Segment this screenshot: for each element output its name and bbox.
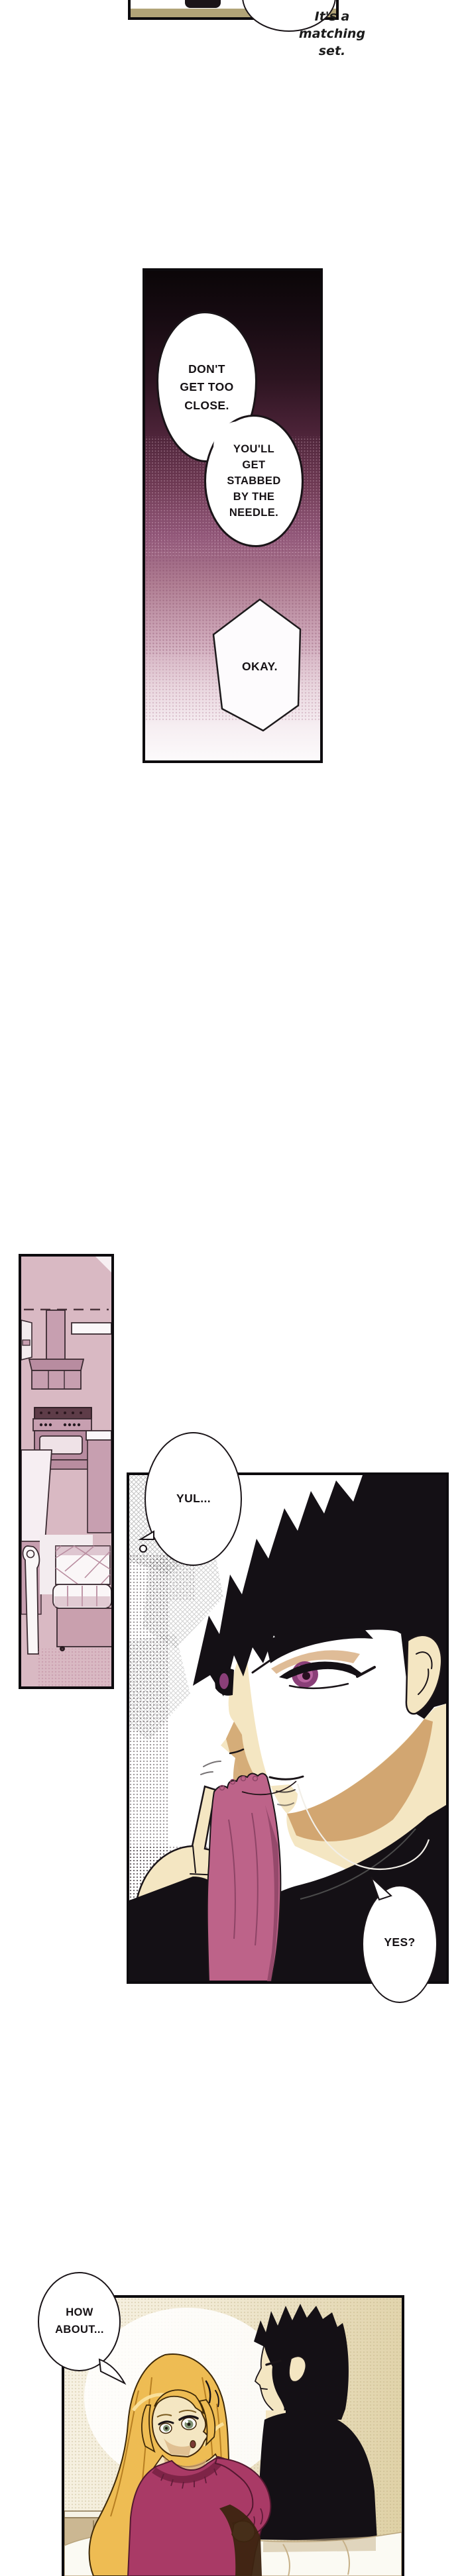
sewing-machine-base — [185, 0, 221, 8]
dialogue-stabbed: YOU'LL GET STABBED BY THE NEEDLE. — [207, 432, 300, 531]
caption-matching-set: It's a matching set. — [294, 8, 371, 60]
counter-right — [86, 1431, 111, 1533]
manga-page: It's a matching set. DON'T GET TOO CLOSE… — [0, 0, 464, 2576]
shelf — [72, 1323, 111, 1334]
dialogue-yul: YUL... — [147, 1489, 240, 1509]
yes-bubble-tail — [366, 1873, 395, 1902]
yul-bubble-tail — [137, 1529, 156, 1555]
how-about-bubble-tail — [97, 2358, 129, 2390]
floor-shadow — [37, 1649, 111, 1686]
panel-kitchen — [19, 1254, 114, 1689]
kitchen-illustration — [21, 1257, 111, 1686]
dialogue-how-about: HOW ABOUT... — [40, 2300, 119, 2344]
dialogue-okay: OKAY. — [213, 657, 306, 677]
dialogue-dont-get-close: DON'T GET TOO CLOSE. — [160, 335, 254, 440]
sofa — [23, 1546, 111, 1654]
pink-garment — [207, 1773, 281, 1981]
man-mouth — [261, 2389, 267, 2389]
wall-appliance — [21, 1320, 32, 1360]
dialogue-yes: YES? — [363, 1933, 436, 1953]
girl-mouth — [190, 2441, 196, 2448]
